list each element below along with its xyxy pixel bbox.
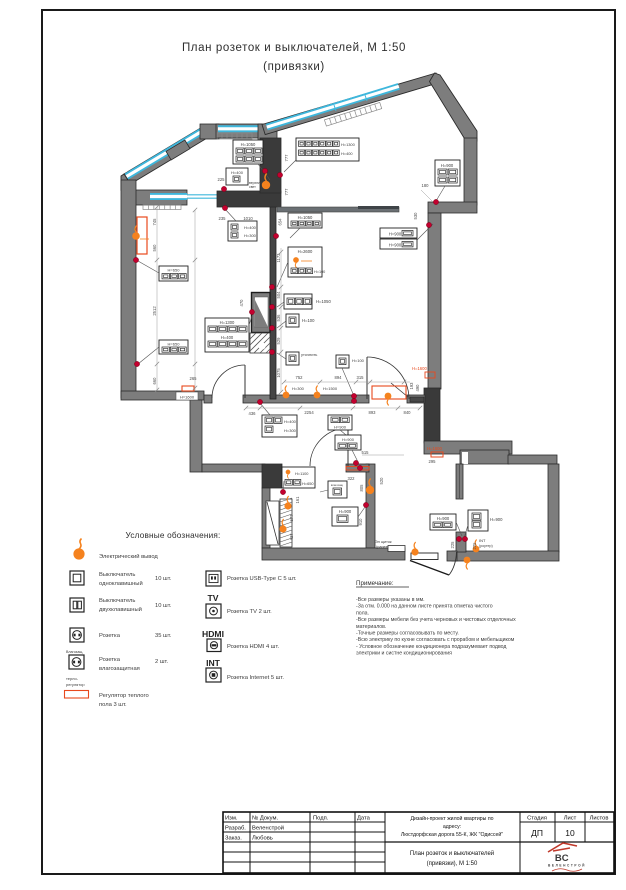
svg-text:H=1600: H=1600 <box>412 366 427 371</box>
svg-text:-За отм. 0.000 на данном листе: -За отм. 0.000 на данном листе принята о… <box>356 604 493 610</box>
svg-text:805: 805 <box>359 484 364 492</box>
svg-text:влагозащитная: влагозащитная <box>99 666 140 672</box>
svg-text:План розеток и выключателей: План розеток и выключателей <box>410 850 494 857</box>
svg-text:H=100: H=100 <box>302 318 315 323</box>
svg-text:Люстдорфская дорога 55-К, ЖК ": Люстдорфская дорога 55-К, ЖК "Одиссей" <box>401 831 503 838</box>
svg-text:H=900: H=900 <box>490 517 503 522</box>
svg-text:ВС: ВС <box>555 853 569 864</box>
svg-text:пола 3 шт.: пола 3 шт. <box>99 702 127 708</box>
svg-text:Розетка Internet 5 шт.: Розетка Internet 5 шт. <box>227 675 284 681</box>
svg-text:адресу:: адресу: <box>443 824 461 830</box>
svg-text:235: 235 <box>219 216 227 221</box>
svg-text:H=300: H=300 <box>244 233 257 238</box>
svg-text:894: 894 <box>335 375 343 380</box>
svg-text:Разраб.: Разраб. <box>225 826 246 832</box>
svg-text:INT: INT <box>479 538 486 543</box>
svg-text:180: 180 <box>422 183 430 188</box>
svg-text:H=1300: H=1300 <box>220 320 235 325</box>
svg-text:H=900: H=900 <box>334 425 347 430</box>
svg-text:Эл щиток: Эл щиток <box>375 540 392 544</box>
svg-text:№ Докум.: № Докум. <box>252 816 278 822</box>
svg-text:INT: INT <box>206 658 221 668</box>
svg-text:H=650: H=650 <box>168 268 181 273</box>
svg-text:TV: TV <box>208 593 219 603</box>
svg-text:свет: свет <box>249 185 256 189</box>
svg-text:H=1050: H=1050 <box>241 142 256 147</box>
svg-text:H=400: H=400 <box>341 151 353 156</box>
svg-text:HDMI: HDMI <box>202 629 224 639</box>
svg-text:H=300: H=300 <box>284 428 297 433</box>
svg-text:H=900: H=900 <box>342 437 355 442</box>
svg-text:H=1050: H=1050 <box>298 215 313 220</box>
svg-text:1173: 1173 <box>276 253 281 263</box>
svg-text:225: 225 <box>450 541 455 549</box>
svg-text:660: 660 <box>152 377 157 385</box>
svg-text:520: 520 <box>379 477 384 485</box>
svg-text:529: 529 <box>276 337 281 345</box>
svg-text:654: 654 <box>278 218 283 226</box>
svg-text:536: 536 <box>276 314 281 322</box>
svg-text:777: 777 <box>284 154 289 162</box>
svg-text:840: 840 <box>404 410 412 415</box>
svg-text:H=650: H=650 <box>302 481 314 486</box>
svg-text:560: 560 <box>152 244 157 252</box>
svg-text:Выключатель: Выключатель <box>99 572 135 578</box>
svg-text:H=900: H=900 <box>389 242 402 247</box>
svg-text:35 шт.: 35 шт. <box>155 633 172 639</box>
svg-text:893: 893 <box>369 410 377 415</box>
svg-text:H=900: H=900 <box>441 163 454 168</box>
svg-text:Заказ.: Заказ. <box>225 836 242 842</box>
svg-text:Розетка HDMI 4 шт.: Розетка HDMI 4 шт. <box>227 644 279 650</box>
svg-text:пола.: пола. <box>356 610 369 616</box>
svg-text:H=900: H=900 <box>437 516 450 521</box>
svg-text:(привязки): (привязки) <box>263 61 325 73</box>
svg-text:161: 161 <box>295 496 300 504</box>
svg-text:436: 436 <box>249 411 257 416</box>
svg-text:2254: 2254 <box>304 410 314 415</box>
svg-text:Розетка USB-Type C 5 шт.: Розетка USB-Type C 5 шт. <box>227 576 297 582</box>
svg-text:-Всю электрику по кухне соглас: -Всю электрику по кухне согласовать с пр… <box>356 637 515 643</box>
svg-text:двухклавишный: двухклавишный <box>99 606 142 613</box>
svg-text:1010: 1010 <box>243 216 253 221</box>
svg-text:2 шт.: 2 шт. <box>155 659 168 665</box>
svg-text:H=2600: H=2600 <box>298 249 313 254</box>
svg-text:1075: 1075 <box>276 368 281 378</box>
svg-text:Лист: Лист <box>564 816 577 822</box>
svg-text:295: 295 <box>429 459 437 464</box>
svg-text:H=100: H=100 <box>352 358 365 363</box>
svg-text:10: 10 <box>565 828 575 838</box>
svg-text:H=1050: H=1050 <box>316 299 331 304</box>
svg-text:193: 193 <box>409 382 414 390</box>
svg-text:225: 225 <box>472 542 477 550</box>
svg-text:315: 315 <box>357 375 365 380</box>
svg-text:265: 265 <box>190 376 198 381</box>
svg-text:уточнить: уточнить <box>301 352 317 357</box>
svg-text:H=1600: H=1600 <box>427 446 442 451</box>
svg-text:Любовь: Любовь <box>252 836 273 842</box>
svg-text:терло-: терло- <box>66 676 79 681</box>
svg-text:H=400: H=400 <box>244 225 257 230</box>
svg-text:752: 752 <box>296 375 304 380</box>
svg-text:Веленстрой: Веленстрой <box>252 825 284 832</box>
svg-text:10 шт.: 10 шт. <box>155 603 172 609</box>
svg-text:Примечание:: Примечание: <box>356 580 394 587</box>
svg-text:-Точные размеры согласовывать: -Точные размеры согласовывать по месту. <box>356 631 459 637</box>
svg-text:504: 504 <box>276 291 281 299</box>
svg-text:Розетка: Розетка <box>99 657 121 663</box>
svg-text:Изм.: Изм. <box>225 816 238 822</box>
svg-text:470: 470 <box>239 299 244 307</box>
svg-text:(привязки), М 1:50: (привязки), М 1:50 <box>427 861 478 867</box>
svg-text:437: 437 <box>289 533 294 541</box>
svg-text:- Условное обозначение кондици: - Условное обозначение кондиционера подр… <box>356 644 506 650</box>
svg-text:H=1300: H=1300 <box>341 142 356 147</box>
svg-text:-Все размеры мебели без учета: -Все размеры мебели без учета черновых и… <box>356 617 516 623</box>
svg-text:Розетка TV 2 шт.: Розетка TV 2 шт. <box>227 609 272 615</box>
svg-text:H=400: H=400 <box>231 170 244 175</box>
svg-text:577: 577 <box>289 514 294 522</box>
svg-text:Выключатель: Выключатель <box>99 598 135 604</box>
svg-text:электрики и систне кондиционир: электрики и систне кондиционирования <box>356 651 452 657</box>
svg-text:Влагозащ.: Влагозащ. <box>66 650 83 654</box>
svg-text:H=1600: H=1600 <box>180 394 195 399</box>
svg-text:745: 745 <box>152 218 157 226</box>
svg-text:H=900: H=900 <box>339 509 352 514</box>
svg-text:515: 515 <box>362 450 370 455</box>
svg-text:H=900: H=900 <box>389 231 402 236</box>
svg-text:одноклавишный: одноклавишный <box>99 580 143 587</box>
svg-text:План розеток и выключателей, М: План розеток и выключателей, М 1:50 <box>182 42 406 54</box>
svg-text:Дизайн-проект жилой квартиры п: Дизайн-проект жилой квартиры по <box>410 815 493 822</box>
svg-text:Розетка: Розетка <box>99 633 121 639</box>
svg-text:Листов: Листов <box>590 816 609 822</box>
svg-text:материалов.: материалов. <box>356 624 386 630</box>
svg-text:H=300: H=300 <box>292 386 305 391</box>
svg-text:Дата: Дата <box>357 816 371 822</box>
svg-text:Условные обозначения:: Условные обозначения: <box>126 531 221 540</box>
svg-text:225: 225 <box>218 177 226 182</box>
svg-text:777: 777 <box>284 188 289 196</box>
svg-text:регулятор: регулятор <box>66 682 85 687</box>
svg-text:322: 322 <box>348 476 356 481</box>
svg-text:Стадия: Стадия <box>527 816 547 822</box>
svg-text:H=100: H=100 <box>314 270 325 274</box>
svg-text:ДП: ДП <box>531 828 543 838</box>
svg-text:ВЕЛЕНСТРОЙ: ВЕЛЕНСТРОЙ <box>548 864 586 868</box>
svg-text:(роутер): (роутер) <box>479 544 493 548</box>
svg-text:Подп.: Подп. <box>313 816 329 822</box>
svg-text:490: 490 <box>415 384 420 392</box>
svg-text:H=1500: H=1500 <box>323 386 338 391</box>
svg-text:530: 530 <box>413 212 418 220</box>
svg-text:-Все размеры указаны в мм.: -Все размеры указаны в мм. <box>356 597 425 603</box>
svg-text:H=1100: H=1100 <box>295 471 309 476</box>
svg-text:H=650: H=650 <box>168 342 181 347</box>
svg-text:H=400: H=400 <box>221 335 234 340</box>
svg-text:2512: 2512 <box>152 306 157 316</box>
svg-text:Электрический вывод: Электрический вывод <box>99 553 158 560</box>
svg-text:10 шт.: 10 шт. <box>155 576 172 582</box>
svg-text:Регулятор теплого: Регулятор теплого <box>99 693 149 699</box>
svg-text:910: 910 <box>358 518 363 526</box>
svg-text:влагозащ: влагозащ <box>331 483 344 487</box>
svg-text:H=400: H=400 <box>284 419 297 424</box>
